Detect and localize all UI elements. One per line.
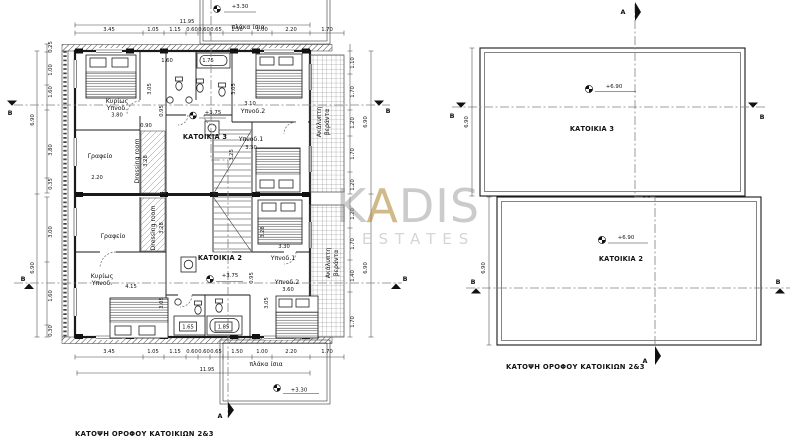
dimension-label: 2.20 [285, 27, 297, 33]
dimension-label: 1.70 [321, 349, 333, 355]
level-label: +3.30 [291, 388, 308, 394]
room-label-bed1: Υπνοδ.1 [238, 136, 263, 143]
roof-unit2-outline [497, 197, 761, 345]
dimension-label: 2.20 [285, 349, 297, 355]
dimension-label: 3.45 [103, 27, 115, 33]
section-label-b: B [403, 275, 408, 283]
veranda-label: βεράντα [332, 250, 340, 277]
section-b-arrow [24, 284, 34, 290]
unit3-label: ΚΑΤΟΙΚΙΑ 3 [183, 133, 228, 141]
dimension-label: 3.45 [103, 349, 115, 355]
room-dim: 3.60 [282, 287, 294, 293]
level-symbol [274, 385, 281, 392]
small-dim: 0.95 [249, 272, 255, 284]
slab-label: πλάκα ίσια [249, 360, 282, 368]
room-dim: 3.30 [245, 145, 257, 151]
bath-fixtures-unit2 [174, 257, 242, 335]
room-label-dressing: Dressing room [134, 139, 141, 184]
roof-plan: +6.90 +6.90 ΚΑΤΟΙΚΙΑ 3 ΚΑΤΟΙΚΙΑ 2 6.90 6… [450, 2, 790, 371]
section-label-a: A [218, 412, 223, 420]
overall-width: 11.95 [200, 367, 215, 373]
dimension-label: 1.00 [256, 27, 268, 33]
dimension-label: 1.60 [48, 290, 54, 302]
dimension-label: 0.60 [198, 349, 210, 355]
room-label-dressing: Dressing room [150, 206, 157, 251]
room-dim: 3.80 [111, 113, 123, 119]
room-dim: 3.10 [244, 101, 256, 107]
dimension-label: 1.20 [350, 117, 356, 129]
toilet [216, 299, 223, 312]
dimension-label: 0.65 [210, 349, 222, 355]
dimension-label: 1.60 [48, 86, 54, 98]
roof-unit3-outline [480, 48, 745, 196]
section-label-b: B [450, 112, 455, 120]
overall-width: 11.95 [180, 19, 195, 25]
small-dim: 0.95 [159, 105, 165, 117]
dimension-label: 0.35 [48, 178, 54, 190]
roof-unit2-label: ΚΑΤΟΙΚΙΑ 2 [599, 255, 644, 263]
room-dim: 2.20 [91, 175, 103, 181]
small-dim: 1.75 [202, 58, 214, 64]
dimension-label: 3.00 [48, 226, 54, 238]
dimension-label: 1.05 [147, 349, 159, 355]
roof-unit2-inner [502, 202, 757, 341]
overall-height: 6.90 [481, 262, 487, 274]
dimension-label: 1.15 [169, 349, 181, 355]
sink [175, 299, 181, 305]
unit2-label: ΚΑΤΟΙΚΙΑ 2 [198, 254, 243, 262]
room-label-office: Γραφείο [88, 152, 113, 160]
dimension-label: 1.00 [48, 64, 54, 76]
dimension-label: 0.30 [48, 325, 54, 337]
toilet [197, 79, 204, 92]
dimension-label: 0.25 [48, 41, 54, 53]
dimension-label: 1.20 [350, 208, 356, 220]
level-label: +6.90 [606, 84, 623, 90]
room-label-master: Κυρίως [91, 272, 114, 280]
room-label-master: Κυρίως [106, 97, 129, 105]
dimension-label: 1.05 [147, 27, 159, 33]
small-dim: 3.25 [229, 149, 235, 161]
overall-height: 6.90 [363, 262, 369, 274]
dimension-label: 0.60 [186, 27, 198, 33]
architectural-drawing: +3.30 πλάκα ίσια 11.95 +3.30 πλάκα ίσια … [0, 0, 796, 448]
dimension-label: 1.50 [231, 27, 243, 33]
level-symbol [190, 112, 197, 119]
room-label-office: Γραφείο [101, 232, 126, 240]
level-symbol [585, 85, 592, 92]
bed-ypnod1-unit3 [256, 148, 300, 192]
level-symbol [598, 236, 605, 243]
room-label-bed1: Υπνοδ.1 [270, 255, 295, 262]
section-label-b: B [8, 109, 13, 117]
small-dim: 3.28 [260, 226, 266, 238]
veranda-label: Ακάλυπτη [315, 107, 323, 138]
bed-master-unit3 [86, 55, 136, 98]
section-b-arrow [391, 284, 401, 290]
level-symbol [214, 6, 221, 13]
bed-ypnod2-unit3 [256, 54, 302, 98]
dimension-label: 1.70 [350, 86, 356, 98]
floor-plan-caption: ΚΑΤΟΨΗ ΟΡΟΦΟΥ ΚΑΤΟΙΚΙΩΝ 2&3 [75, 430, 214, 438]
toilet [219, 83, 226, 96]
section-label-b: B [471, 278, 476, 286]
bath-fixtures-unit3 [167, 53, 230, 135]
tub-dim: 1.85 [218, 325, 230, 331]
overall-height: 6.90 [30, 114, 36, 126]
section-label-b: B [386, 107, 391, 115]
small-dim: 3.05 [147, 83, 153, 95]
section-b-arrow [471, 288, 481, 293]
dimension-label: 1.00 [256, 349, 268, 355]
dimension-label: 0.60 [186, 349, 198, 355]
dimension-label: 1.15 [169, 27, 181, 33]
shower-dim: 1.65 [182, 325, 194, 331]
roof-unit3-inner [485, 53, 741, 192]
small-dim: 0.90 [140, 123, 152, 129]
dimension-label: 1.70 [350, 148, 356, 160]
dimension-label: 0.65 [210, 27, 222, 33]
small-dim: 3.05 [231, 83, 237, 95]
level-label: +6.90 [618, 235, 635, 241]
roof-section-lines [452, 2, 790, 365]
veranda-label: βεράντα [323, 109, 331, 136]
section-b-arrow [775, 288, 785, 293]
insulation-band [62, 51, 68, 337]
room-label-master: Υπνοδ. [106, 105, 128, 112]
drawing-canvas: +3.30 πλάκα ίσια 11.95 +3.30 πλάκα ίσια … [0, 0, 796, 448]
room-dim: 3.30 [278, 244, 290, 250]
room-dim: 3.28 [143, 155, 149, 167]
roof-unit3-label: ΚΑΤΟΙΚΙΑ 3 [570, 125, 615, 133]
floor-plan: +3.30 πλάκα ίσια 11.95 +3.30 πλάκα ίσια … [7, 0, 408, 438]
section-a-arrow [228, 402, 234, 418]
veranda-label: Ακάλυπτη [324, 248, 332, 279]
sink [167, 97, 173, 103]
dimension-label: 1.20 [350, 179, 356, 191]
room-dim: 3.28 [159, 222, 165, 234]
stairs-unit2 [213, 197, 252, 252]
level-label: +3.75 [205, 110, 222, 116]
small-dim: 3.05 [264, 297, 270, 309]
bed-ypnod2-unit2 [276, 296, 318, 338]
section-label-a: A [621, 8, 626, 16]
section-a-arrow [655, 346, 661, 365]
room-dim: 4.15 [125, 284, 137, 290]
dimension-label: 1.40 [350, 270, 356, 282]
level-label: +3.75 [222, 273, 239, 279]
section-label-b: B [776, 278, 781, 286]
roof-plan-caption: ΚΑΤΟΨΗ ΟΡΟΦΟΥ ΚΑΤΟΙΚΙΩΝ 2&3 [506, 363, 645, 371]
small-dim: 1.60 [161, 58, 173, 64]
dimension-label: 1.10 [350, 57, 356, 69]
room-label-master: Υπνοδ. [91, 280, 113, 287]
room-label-bed2: Υπνοδ.2 [240, 108, 265, 115]
sink [186, 97, 192, 103]
toilet [176, 77, 183, 90]
overall-height: 6.90 [363, 116, 369, 128]
overall-height: 6.90 [464, 116, 470, 128]
dimension-label: 1.70 [350, 238, 356, 250]
dimension-label: 1.50 [231, 349, 243, 355]
toilet [195, 301, 202, 314]
dimension-label: 1.70 [350, 316, 356, 328]
section-label-b: B [21, 275, 26, 283]
section-a-arrow [635, 2, 641, 21]
room-label-bed2: Υπνοδ.2 [274, 279, 299, 286]
dimension-label: 0.60 [198, 27, 210, 33]
small-dim: 3.05 [159, 297, 165, 309]
dimension-label: 1.70 [321, 27, 333, 33]
dimension-label: 3.80 [48, 144, 54, 156]
washing-machine [181, 257, 196, 272]
level-label: +3.30 [232, 4, 249, 10]
overall-height: 6.90 [30, 262, 36, 274]
section-label-b: B [760, 113, 765, 121]
level-symbol [207, 276, 214, 283]
